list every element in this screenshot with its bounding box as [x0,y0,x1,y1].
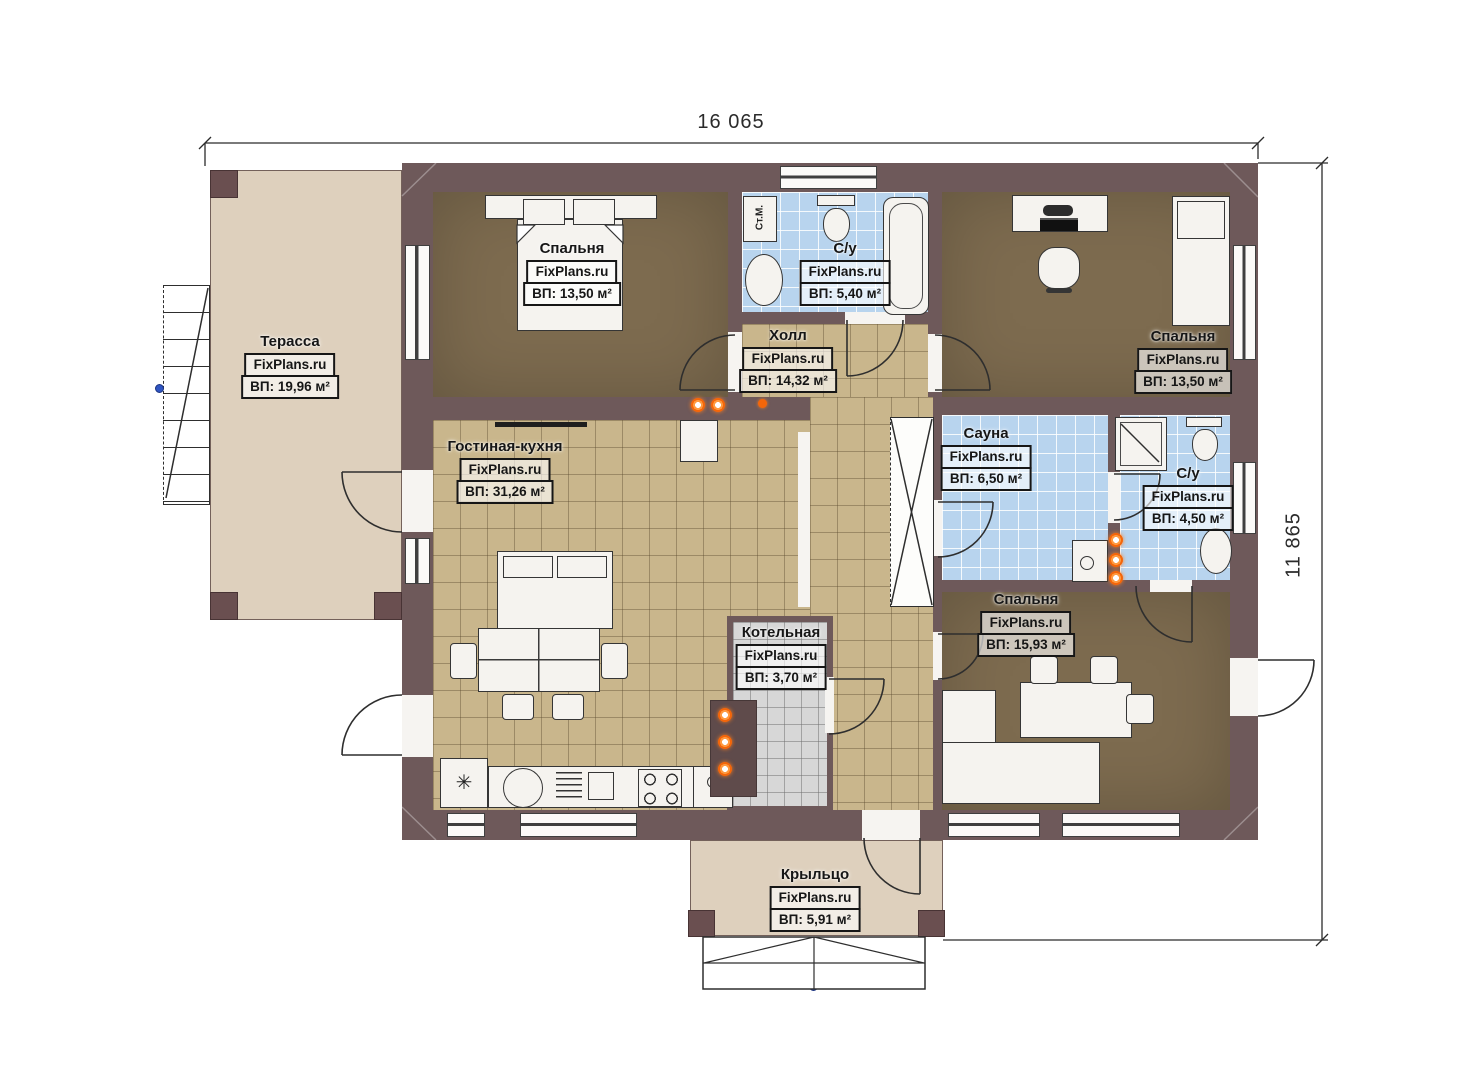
room-label-hall: Холл FixPlans.ru ВП: 14,32 м² [739,327,837,393]
porch-pillar [918,910,945,937]
flame-icon [1109,533,1123,547]
office-chair [1038,247,1080,289]
room-name: С/у [1176,465,1199,482]
dishwasher-door [588,772,614,800]
dimension-width-label: 16 065 [697,111,764,134]
window [1233,462,1256,534]
room-label-bedroom3: Спальня FixPlans.ru ВП: 15,93 м² [977,591,1075,657]
laptop-icon [1043,205,1073,216]
flame-icon [718,762,732,776]
room-area: ВП: 31,26 м² [456,480,554,504]
chair [552,694,584,720]
room-area: ВП: 5,40 м² [800,282,890,306]
toilet-tank [817,195,855,206]
chair-base [1046,288,1072,293]
watermark: FixPlans.ru [460,458,551,482]
chair [1030,656,1058,684]
stove-burners [638,769,682,807]
flame-icon [711,398,725,412]
window [447,813,485,837]
flame-icon [691,398,705,412]
room-area: ВП: 3,70 м² [736,666,826,690]
porch-door-opening [862,810,920,840]
terrace-pillar [210,170,238,198]
floor-plan: 16 065 11 865 Ст.М. [0,0,1473,1080]
side-door-opening [402,695,433,757]
room-label-terrace: Терасса FixPlans.ru ВП: 19,96 м² [241,333,339,399]
room-name: Спальня [540,240,605,257]
window [405,538,430,584]
corridor-partition-opening [798,432,810,607]
vent-dot-icon [758,399,767,408]
room-label-bedroom2: Спальня FixPlans.ru ВП: 13,50 м² [1134,328,1232,394]
window [1233,245,1256,360]
room-name: Крыльцо [781,866,849,883]
fireplace [680,420,718,462]
bath2-door-opening [1108,472,1120,523]
chair [1126,694,1154,724]
room-area: ВП: 13,50 м² [523,282,621,306]
bedroom3-door-opening [933,632,942,680]
room-name: Гостиная-кухня [448,438,563,455]
room-name: Спальня [994,591,1059,608]
toilet-bowl [823,208,850,242]
stairs-marker-dot [155,384,164,393]
flame-icon [1109,553,1123,567]
watermark: FixPlans.ru [981,611,1072,635]
steps-marker-dot [809,982,818,991]
room-label-boiler: Котельная FixPlans.ru ВП: 3,70 м² [736,624,827,690]
terrace-pillar [374,592,402,620]
room-area: ВП: 14,32 м² [739,369,837,393]
room-area: ВП: 6,50 м² [941,467,1031,491]
room-label-sauna: Сауна FixPlans.ru ВП: 6,50 м² [941,425,1032,491]
watermark: FixPlans.ru [941,445,1032,469]
wash-basin [1200,528,1232,574]
room-area: ВП: 15,93 м² [977,633,1075,657]
shower-tray-inner [1120,422,1162,466]
room-name: Холл [769,327,807,344]
watermark: FixPlans.ru [1143,485,1234,509]
toilet-bowl [1192,429,1218,461]
fridge: ✳ [440,758,488,808]
room-name: Терасса [260,333,319,350]
room-label-bedroom1: Спальня FixPlans.ru ВП: 13,50 м² [523,240,621,306]
corner-sofa-horizontal [942,742,1100,804]
watermark: FixPlans.ru [245,353,336,377]
bedroom3-top-door-opening [1150,580,1192,592]
heater-knob [1080,556,1094,570]
room-area: ВП: 13,50 м² [1134,370,1232,394]
watermark: FixPlans.ru [527,260,618,284]
window [948,813,1040,837]
watermark: FixPlans.ru [1138,348,1229,372]
room-label-bath2: С/у FixPlans.ru ВП: 4,50 м² [1143,465,1234,531]
flame-icon [718,735,732,749]
wash-basin [745,254,783,306]
window [1062,813,1180,837]
sofa-cushion [503,556,553,578]
headboard-shelf [485,195,657,219]
kitchen-sink [503,768,543,808]
toilet-tank [1186,417,1222,427]
terrace-pillar [210,592,238,620]
watermark: FixPlans.ru [770,886,861,910]
wardrobe [890,417,934,607]
washing-machine-label: Ст.М. [755,196,766,240]
flame-icon [718,708,732,722]
room-label-bath1: С/у FixPlans.ru ВП: 5,40 м² [800,240,891,306]
window [520,813,637,837]
bathtub-inner [889,203,923,309]
room-label-porch: Крыльцо FixPlans.ru ВП: 5,91 м² [770,866,861,932]
bedroom2-door-opening [928,334,942,392]
washing-machine: Ст.М. [743,196,777,242]
room-name: Спальня [1151,328,1216,345]
pillow [523,199,565,225]
desk [1020,682,1132,738]
laptop-keyboard-icon [1040,218,1078,231]
dishwasher-stripes [556,772,582,800]
room-area: ВП: 5,91 м² [770,908,860,932]
room-label-living: Гостиная-кухня FixPlans.ru ВП: 31,26 м² [448,438,563,504]
porch-pillar [688,910,715,937]
dining-table [478,628,600,692]
chair [502,694,534,720]
room-name: С/у [833,240,856,257]
window [780,166,877,189]
chair [601,643,628,679]
window [405,245,430,360]
chair [450,643,477,679]
dimension-height-label: 11 865 [1283,512,1306,578]
room-name: Котельная [742,624,821,641]
watermark: FixPlans.ru [800,260,891,284]
terrace-stairs [163,285,210,505]
bedroom3-exterior-door-opening [1230,658,1258,716]
fridge-icon: ✳ [456,772,473,794]
room-name: Сауна [963,425,1008,442]
watermark: FixPlans.ru [743,347,834,371]
pillow [1177,201,1225,239]
sauna-door-opening [933,500,942,556]
sofa-cushion [557,556,607,578]
watermark: FixPlans.ru [736,644,827,668]
flame-icon [1109,571,1123,585]
room-area: ВП: 4,50 м² [1143,507,1233,531]
pillow [573,199,615,225]
room-area: ВП: 19,96 м² [241,375,339,399]
chair [1090,656,1118,684]
tv [495,422,587,427]
terrace-door-opening [402,470,433,532]
